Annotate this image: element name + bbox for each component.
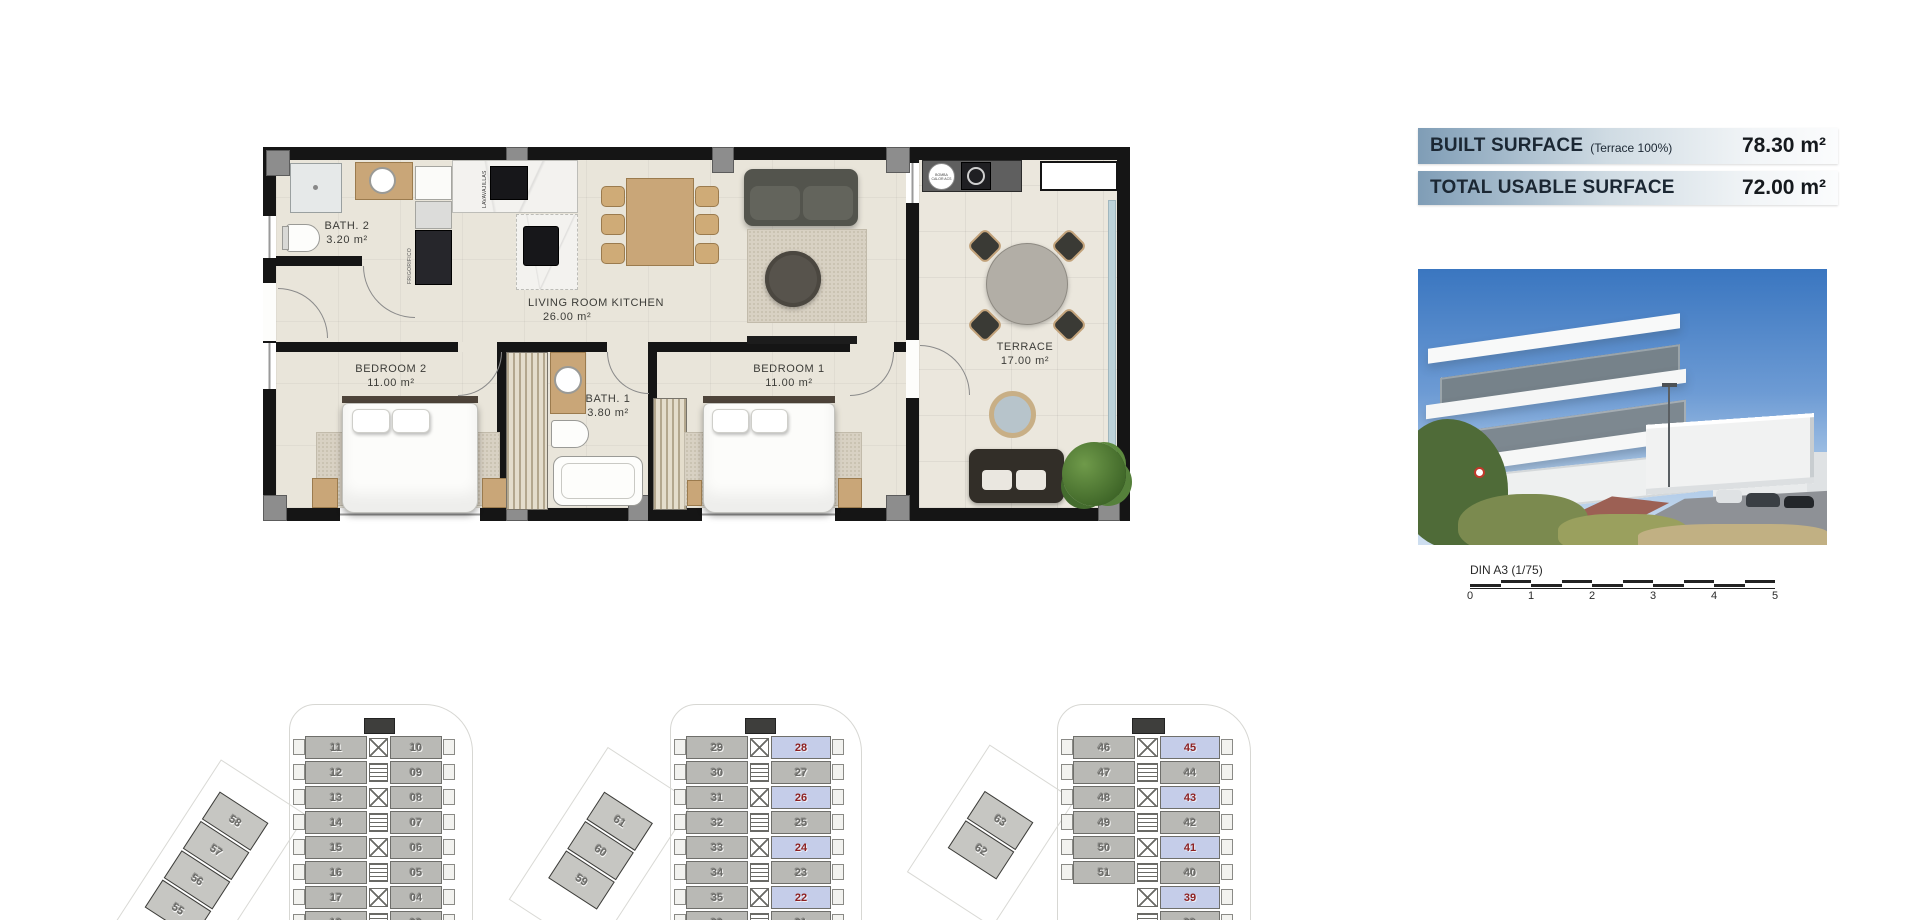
unit-number: 61	[611, 812, 628, 829]
balcony-notch	[832, 789, 844, 805]
unit-cell: 35	[686, 886, 748, 909]
balcony-notch	[293, 839, 305, 855]
balcony-notch	[1221, 764, 1233, 780]
unit-cell: 30	[686, 761, 748, 784]
elevator-icon	[1137, 788, 1158, 807]
unit-cell-highlighted: 24	[771, 836, 831, 859]
unit-cell: 12	[305, 761, 367, 784]
unit-number: 33	[711, 842, 723, 854]
plan-sheet: FRIGORIFICO LAVAVAJILLAS	[0, 0, 1920, 920]
unit-number: 26	[795, 792, 807, 804]
unit-cell: 29	[686, 736, 748, 759]
balcony-notch	[443, 789, 455, 805]
unit-cell: 17	[305, 886, 367, 909]
stairs-icon	[750, 913, 769, 920]
unit-cell-highlighted: 39	[1160, 886, 1220, 909]
unit-number: 51	[1098, 867, 1110, 879]
balcony-notch	[832, 864, 844, 880]
unit-cell: 11	[305, 736, 367, 759]
unit-cell: 44	[1160, 761, 1220, 784]
stairs-icon	[1137, 763, 1158, 782]
stair-core-roof	[745, 718, 776, 734]
unit-cell: 18	[305, 911, 367, 920]
unit-number: 17	[330, 892, 342, 904]
elevator-icon	[750, 838, 769, 857]
unit-cell: 46	[1073, 736, 1135, 759]
elevator-icon	[1137, 888, 1158, 907]
stairs-icon	[369, 813, 388, 832]
unit-cell: 03	[390, 911, 442, 920]
unit-cell: 21	[771, 911, 831, 920]
unit-number: 29	[711, 742, 723, 754]
balcony-notch	[1061, 764, 1073, 780]
unit-number: 46	[1098, 742, 1110, 754]
unit-number: 49	[1098, 817, 1110, 829]
elevator-icon	[750, 738, 769, 757]
elevator-icon	[1137, 738, 1158, 757]
unit-cell: 06	[390, 836, 442, 859]
unit-number: 56	[189, 871, 206, 888]
unit-cell-highlighted: 41	[1160, 836, 1220, 859]
unit-cell: 40	[1160, 861, 1220, 884]
balcony-notch	[1221, 914, 1233, 920]
balcony-notch	[443, 764, 455, 780]
balcony-notch	[832, 839, 844, 855]
balcony-notch	[1221, 889, 1233, 905]
balcony-notch	[293, 914, 305, 920]
unit-number: 31	[711, 792, 723, 804]
unit-cell-highlighted: 26	[771, 786, 831, 809]
unit-number: 34	[711, 867, 723, 879]
stairs-icon	[1137, 813, 1158, 832]
unit-number: 22	[795, 892, 807, 904]
unit-number: 41	[1184, 842, 1196, 854]
balcony-notch	[832, 814, 844, 830]
unit-cell: 13	[305, 786, 367, 809]
stairs-icon	[1137, 913, 1158, 920]
balcony-notch	[1221, 814, 1233, 830]
stairs-icon	[1137, 863, 1158, 882]
balcony-notch	[293, 764, 305, 780]
unit-number: 16	[330, 867, 342, 879]
unit-number: 38	[1184, 917, 1196, 920]
unit-number: 14	[330, 817, 342, 829]
unit-number: 13	[330, 792, 342, 804]
balcony-notch	[1061, 814, 1073, 830]
unit-cell: 05	[390, 861, 442, 884]
unit-cell: 25	[771, 811, 831, 834]
unit-cell: 04	[390, 886, 442, 909]
unit-number: 57	[208, 842, 225, 859]
balcony-notch	[293, 739, 305, 755]
balcony-notch	[832, 914, 844, 920]
balcony-notch	[674, 814, 686, 830]
balcony-notch	[1221, 839, 1233, 855]
elevator-icon	[369, 788, 388, 807]
balcony-notch	[674, 739, 686, 755]
stair-core-roof	[364, 718, 395, 734]
unit-number: 24	[795, 842, 807, 854]
unit-cell: 31	[686, 786, 748, 809]
unit-number: 59	[573, 871, 590, 888]
stairs-icon	[750, 763, 769, 782]
unit-number: 05	[410, 867, 422, 879]
unit-number: 07	[410, 817, 422, 829]
unit-number: 55	[170, 901, 187, 918]
key-plans: 1110120913081407150616051704180358575655…	[0, 0, 1920, 920]
unit-number: 10	[410, 742, 422, 754]
balcony-notch	[674, 889, 686, 905]
unit-number: 23	[795, 867, 807, 879]
balcony-notch	[832, 739, 844, 755]
unit-number: 25	[795, 817, 807, 829]
unit-number: 40	[1184, 867, 1196, 879]
elevator-icon	[369, 738, 388, 757]
unit-cell: 47	[1073, 761, 1135, 784]
unit-cell: 08	[390, 786, 442, 809]
unit-cell: 49	[1073, 811, 1135, 834]
unit-cell-highlighted: 22	[771, 886, 831, 909]
unit-cell: 14	[305, 811, 367, 834]
unit-number: 42	[1184, 817, 1196, 829]
unit-cell: 09	[390, 761, 442, 784]
stairs-icon	[369, 763, 388, 782]
balcony-notch	[1061, 789, 1073, 805]
unit-number: 28	[795, 742, 807, 754]
unit-number: 47	[1098, 767, 1110, 779]
balcony-notch	[832, 889, 844, 905]
balcony-notch	[293, 814, 305, 830]
unit-cell: 51	[1073, 861, 1135, 884]
unit-number: 27	[795, 767, 807, 779]
balcony-notch	[1061, 839, 1073, 855]
unit-number: 04	[410, 892, 422, 904]
unit-cell-highlighted: 28	[771, 736, 831, 759]
unit-number: 18	[330, 917, 342, 920]
balcony-notch	[1061, 864, 1073, 880]
unit-number: 06	[410, 842, 422, 854]
balcony-notch	[1221, 789, 1233, 805]
unit-cell: 07	[390, 811, 442, 834]
unit-number: 48	[1098, 792, 1110, 804]
balcony-notch	[443, 839, 455, 855]
balcony-notch	[832, 764, 844, 780]
balcony-notch	[674, 789, 686, 805]
unit-number: 03	[410, 917, 422, 920]
unit-cell-highlighted: 43	[1160, 786, 1220, 809]
balcony-notch	[674, 914, 686, 920]
unit-number: 44	[1184, 767, 1196, 779]
stairs-icon	[369, 913, 388, 920]
elevator-icon	[1137, 838, 1158, 857]
unit-number: 36	[711, 917, 723, 920]
stairs-icon	[750, 863, 769, 882]
unit-number: 60	[592, 842, 609, 859]
stairs-icon	[369, 863, 388, 882]
unit-number: 63	[992, 812, 1009, 829]
unit-number: 15	[330, 842, 342, 854]
balcony-notch	[443, 914, 455, 920]
balcony-notch	[443, 814, 455, 830]
unit-number: 58	[227, 813, 244, 830]
unit-cell: 33	[686, 836, 748, 859]
unit-cell: 48	[1073, 786, 1135, 809]
balcony-notch	[1221, 864, 1233, 880]
unit-number: 30	[711, 767, 723, 779]
elevator-icon	[369, 888, 388, 907]
unit-number: 50	[1098, 842, 1110, 854]
unit-cell: 32	[686, 811, 748, 834]
unit-number: 43	[1184, 792, 1196, 804]
unit-cell: 16	[305, 861, 367, 884]
unit-cell: 42	[1160, 811, 1220, 834]
balcony-notch	[674, 839, 686, 855]
balcony-notch	[1221, 739, 1233, 755]
balcony-notch	[443, 739, 455, 755]
balcony-notch	[1061, 739, 1073, 755]
unit-number: 35	[711, 892, 723, 904]
unit-number: 62	[973, 841, 990, 858]
unit-cell: 27	[771, 761, 831, 784]
balcony-notch	[443, 889, 455, 905]
unit-number: 32	[711, 817, 723, 829]
elevator-icon	[369, 838, 388, 857]
unit-cell: 15	[305, 836, 367, 859]
stair-core-roof	[1132, 718, 1165, 734]
balcony-notch	[674, 864, 686, 880]
unit-cell: 10	[390, 736, 442, 759]
unit-number: 09	[410, 767, 422, 779]
unit-cell: 50	[1073, 836, 1135, 859]
balcony-notch	[293, 789, 305, 805]
elevator-icon	[750, 788, 769, 807]
elevator-icon	[750, 888, 769, 907]
unit-number: 21	[795, 917, 807, 920]
balcony-notch	[674, 764, 686, 780]
unit-number: 08	[410, 792, 422, 804]
unit-cell-highlighted: 45	[1160, 736, 1220, 759]
unit-number: 12	[330, 767, 342, 779]
balcony-notch	[443, 864, 455, 880]
unit-number: 45	[1184, 742, 1196, 754]
unit-cell: 36	[686, 911, 748, 920]
unit-cell: 38	[1160, 911, 1220, 920]
balcony-notch	[293, 864, 305, 880]
unit-cell: 23	[771, 861, 831, 884]
unit-cell: 34	[686, 861, 748, 884]
balcony-notch	[293, 889, 305, 905]
stairs-icon	[750, 813, 769, 832]
unit-number: 11	[330, 742, 342, 754]
unit-number: 39	[1184, 892, 1196, 904]
